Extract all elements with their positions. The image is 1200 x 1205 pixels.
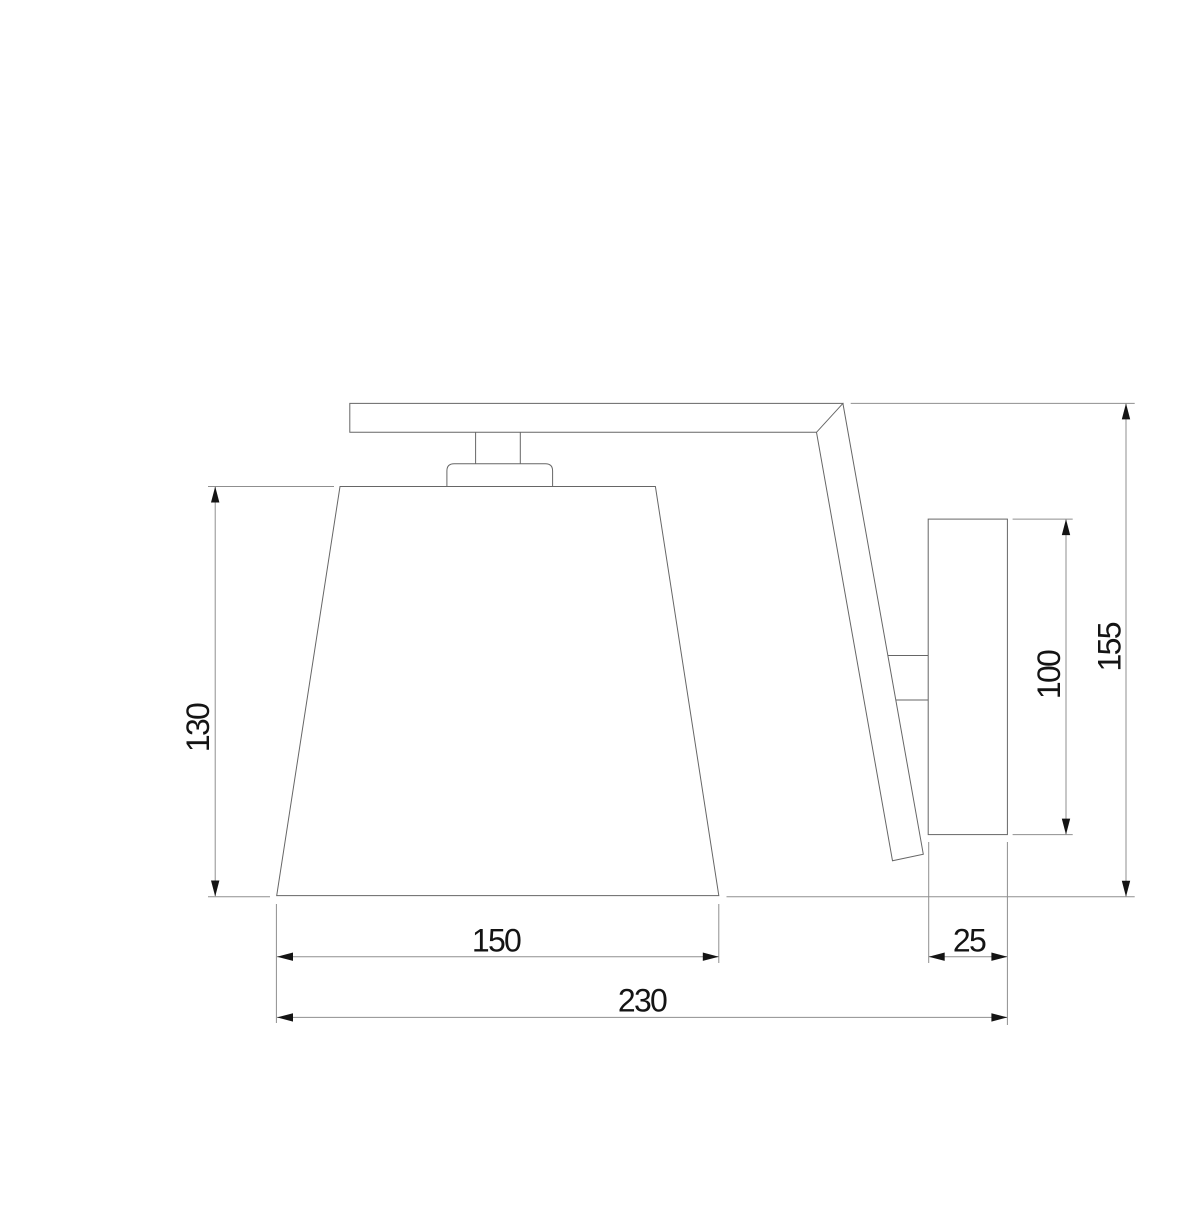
svg-text:230: 230 xyxy=(618,983,667,1019)
svg-text:130: 130 xyxy=(180,703,216,752)
svg-text:25: 25 xyxy=(953,922,986,958)
svg-text:150: 150 xyxy=(472,923,521,959)
svg-text:100: 100 xyxy=(1031,650,1067,699)
svg-text:155: 155 xyxy=(1092,622,1128,671)
